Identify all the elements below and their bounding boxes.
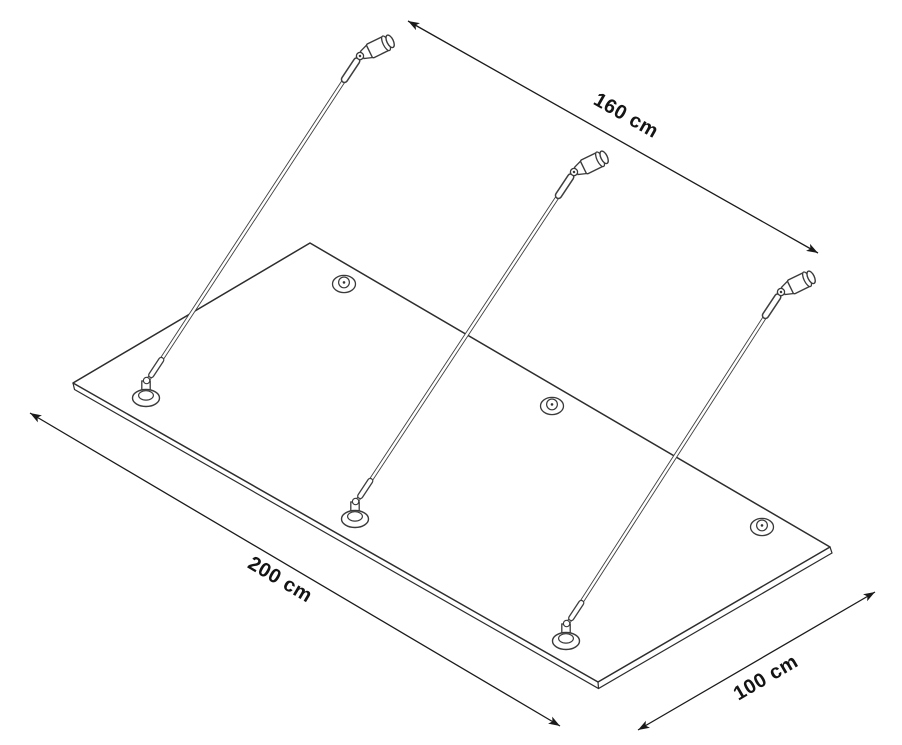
dimension-length: 200 cm [30,413,560,726]
point-fixing-cap-2 [541,397,564,414]
glass-canopy-drawing: 160 cm 200 cm 100 cm [0,0,902,745]
glass-panel-thickness [73,383,832,689]
dimension-depth-label: 100 cm [730,650,802,705]
rod-glass-mount-2 [342,498,369,527]
rod-glass-mount-1 [133,377,160,406]
support-rod-3 [568,292,781,623]
point-fixing-cap-3 [751,518,774,535]
glass-panel-corner-edge [598,682,599,689]
dimension-width: 160 cm [408,21,818,253]
support-rod-2 [357,172,574,501]
rod-glass-mount-3 [553,620,580,649]
technical-drawing-canvas: 160 cm 200 cm 100 cm [0,0,902,745]
support-rod-1 [148,56,360,380]
glass-panel [73,243,830,682]
wall-anchor-3 [774,269,817,301]
dimension-width-label: 160 cm [590,89,662,143]
dimension-depth: 100 cm [638,592,875,730]
point-fixing-cap-1 [333,275,356,292]
wall-anchor-1 [353,33,396,65]
wall-anchor-2 [567,149,610,181]
